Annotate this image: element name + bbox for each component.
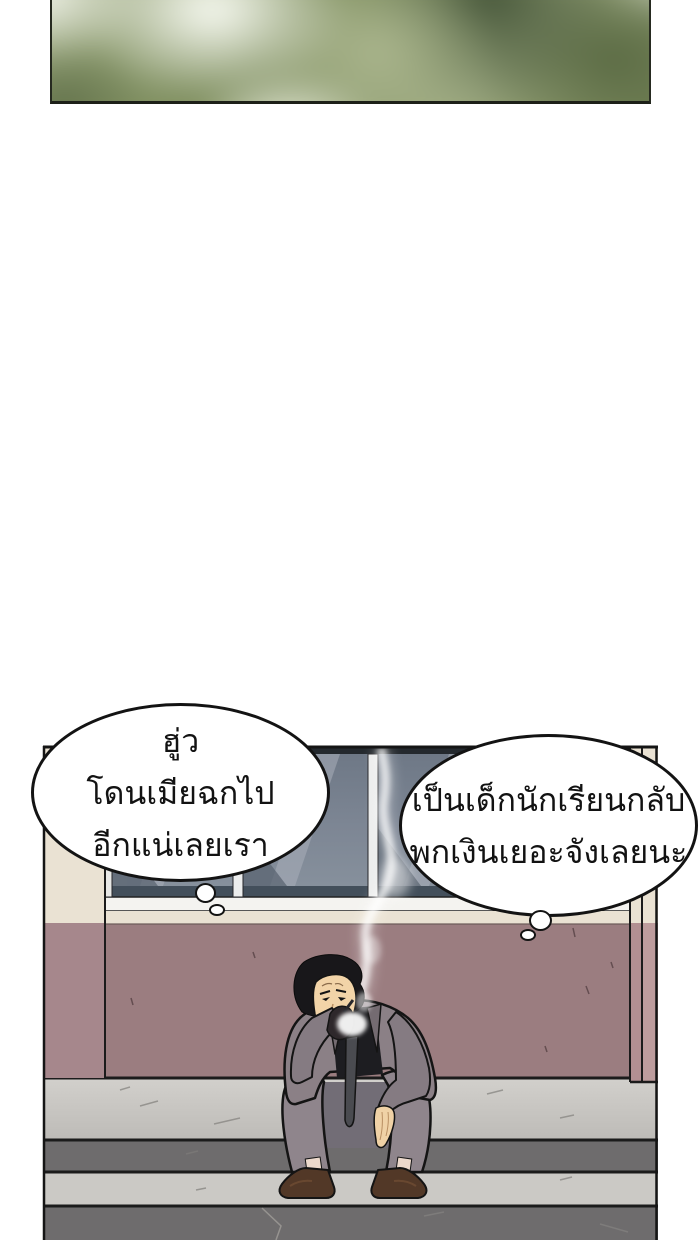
webtoon-page: { "comic": { "thought_bubbles": { "left"… [0,0,700,1240]
thought-trail-circle [529,910,552,931]
thought-bubble-right: เป็นเด็กนักเรียนกลับ พกเงินเยอะจังเลยนะ [399,734,698,917]
thought-trail-circle [209,904,225,916]
bubble-text-line: พกเงินเยอะจังเลยนะ [410,826,688,878]
foliage-blur-texture [50,0,651,104]
thought-bubble-left: ฮู่ว โดนเมียฉกไป อีกแน่เลยเรา [31,703,330,882]
bubble-text-line: เป็นเด็กนักเรียนกลับ [412,774,686,826]
smoke-puff [337,1012,367,1036]
thought-trail-circle [195,883,216,903]
bubble-text-line: อีกแน่เลยเรา [92,819,268,871]
thought-trail-circle [520,929,536,941]
step-riser-2 [43,1206,658,1240]
step-tread [43,1172,658,1206]
bubble-text-line: โดนเมียฉกไป [86,767,274,819]
blurry-foliage-photo [50,0,651,104]
bubble-text-line: ฮู่ว [162,715,200,767]
